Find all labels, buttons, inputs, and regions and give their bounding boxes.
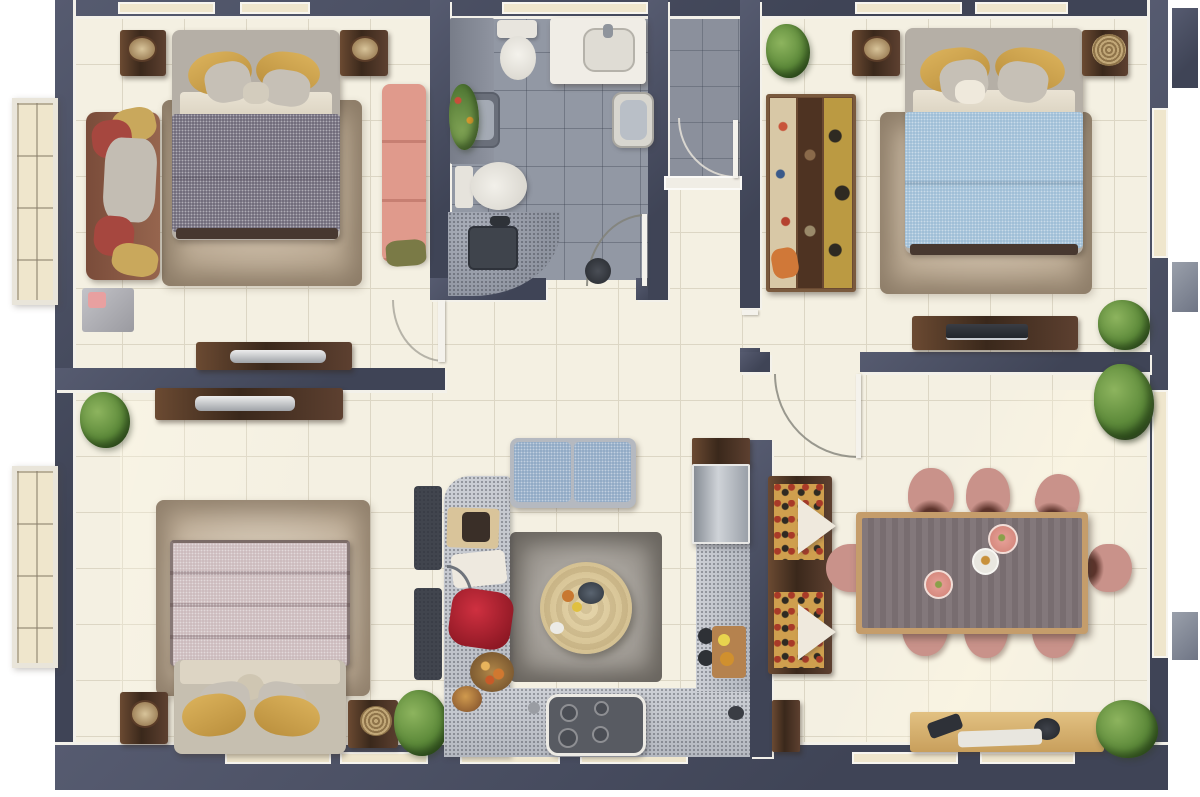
bed1-pillow-small (243, 82, 269, 104)
loveseat-cushion-left (514, 442, 571, 502)
plant-bed2-southeast (1098, 300, 1150, 350)
desk-accent-pink (88, 292, 106, 308)
fruit-on-table-1 (562, 590, 574, 602)
threshold-entry (664, 176, 742, 190)
tv-bed3 (195, 396, 295, 411)
door-leaf-entry (733, 120, 738, 178)
window-top-bath (502, 2, 648, 14)
stove-burner-3 (558, 728, 578, 748)
napkin-triangle-lower (798, 604, 836, 660)
throw-green-sofa-salmon (385, 239, 427, 268)
stove-burner-4 (592, 726, 609, 743)
window-bottom-dining-b (980, 752, 1075, 764)
toilet-bathroom-top-bowl (500, 36, 536, 80)
plant-bed3-north (80, 392, 130, 448)
fruit-on-board-1 (718, 634, 730, 646)
stove-knob (528, 702, 540, 714)
bed2-plant-corner (766, 24, 810, 78)
bath-corner-sink (468, 226, 518, 270)
bath-dark-stool (585, 258, 611, 284)
coffee-machine (462, 512, 490, 542)
bench-kitchen-lower (414, 588, 442, 680)
door-leaf-dining (856, 374, 861, 458)
dining-chair-right (1088, 544, 1132, 592)
tv-bed1 (230, 350, 326, 363)
bath-wall-sink-right-inner (620, 100, 647, 140)
decor-bowl-bed1-left (127, 36, 157, 62)
plate-white (972, 548, 999, 575)
door-leaf-bedroom2 (742, 310, 758, 315)
loveseat-cushion-right (574, 442, 631, 502)
bay-window-left-upper (12, 98, 58, 305)
bowl-on-round-table (578, 582, 604, 604)
bed2-pillow-small (955, 80, 985, 104)
decor-rattan-bed2 (1092, 34, 1126, 66)
bed1-footboard (176, 228, 338, 239)
dining-table-top (862, 518, 1082, 628)
bed2-duvet (905, 112, 1083, 248)
wall-bed2-south-left (740, 352, 770, 372)
door-leaf-bathroom (642, 214, 647, 286)
cabinet-kitchen-top-right (692, 438, 750, 466)
bed2-footboard (910, 244, 1078, 255)
fridge-stainless (692, 464, 750, 544)
bed3-duvet (170, 540, 350, 666)
decor-bowl-bed1-right (350, 36, 380, 62)
cabinet-dining-wall (772, 700, 800, 752)
bed1-duvet (172, 114, 340, 232)
wardrobe-col-dark (798, 98, 822, 288)
window-bottom-dining-a (852, 752, 958, 764)
decor-bowl-bed3-left (130, 700, 160, 728)
wall-entry-right-upper (740, 0, 760, 308)
vanity-faucet (603, 24, 613, 38)
bay-window-left-lower (12, 466, 58, 668)
console-tray-white (958, 729, 1043, 748)
wardrobe-col-camo (824, 98, 852, 288)
cushion-red-kitchen (446, 586, 515, 652)
wall-bed1-bath (430, 0, 450, 298)
decor-rattan-bed3 (360, 706, 392, 736)
wall-bed1-south (55, 368, 445, 390)
fruit-bowl-kitchen (470, 652, 514, 692)
window-right-bed2 (1152, 108, 1168, 258)
tv-bed2 (946, 324, 1028, 340)
dining-chair-top-1 (908, 468, 954, 518)
stove-burner-1 (560, 704, 578, 722)
fruit-on-board-2 (720, 652, 734, 666)
cup-on-table (550, 622, 564, 634)
bench-kitchen-upper (414, 486, 442, 570)
toilet-bathroom-left-bowl (471, 162, 527, 210)
plant-dining-northeast (1094, 364, 1152, 438)
bowl-brown-kitchen (452, 686, 482, 712)
window-top-bed1-a (118, 2, 215, 14)
napkin-triangle-upper (798, 498, 836, 554)
floor-plan (0, 0, 1200, 797)
bath-plant-decor (449, 84, 479, 150)
plant-dining-southeast (1096, 700, 1158, 758)
round-table-kitchen (540, 562, 632, 654)
plant-bed3-southeast (394, 690, 448, 756)
ac-block-right-top (1172, 8, 1198, 88)
decor-bowl-bed2-left (862, 36, 892, 62)
sofa-bed1-throw-gray (102, 137, 158, 224)
window-top-bed1-b (240, 2, 310, 14)
sofa-salmon-bed1 (382, 84, 426, 262)
ac-block-right-mid (1172, 262, 1198, 312)
stove-burner-2 (594, 701, 609, 716)
window-top-bed2-a (855, 2, 962, 14)
window-right-dining (1152, 390, 1168, 658)
ac-block-right-low (1172, 612, 1198, 660)
window-top-bed2-b (975, 2, 1068, 14)
dining-chair-top-2 (966, 468, 1010, 518)
wall-bath-right (648, 0, 668, 300)
door-leaf-bedroom1 (438, 300, 445, 362)
fruit-on-table-2 (572, 602, 582, 612)
bath-corner-faucet (490, 216, 510, 226)
sink-drain-kitchen (728, 706, 744, 720)
plate-pink-2 (924, 570, 953, 599)
